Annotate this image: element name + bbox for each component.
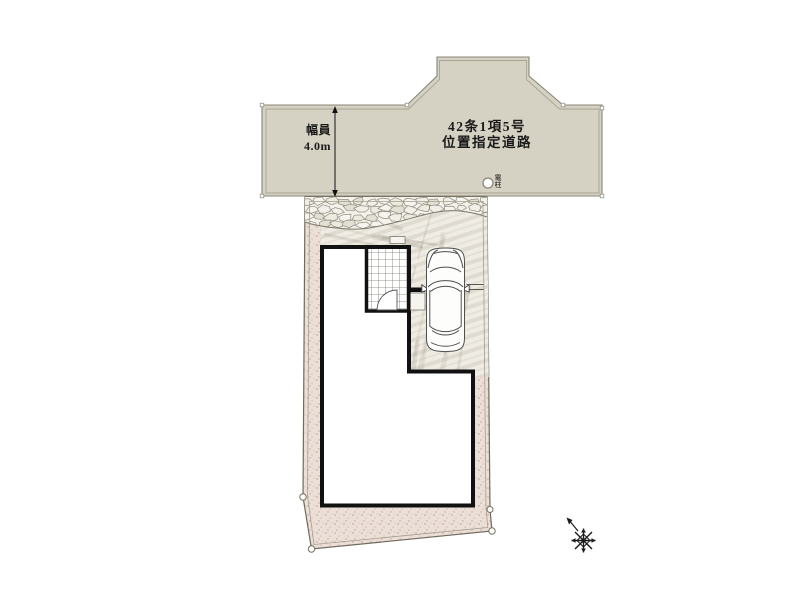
car-icon [422, 248, 469, 352]
plot-area [299, 197, 495, 553]
utility-pole-icon [483, 178, 493, 188]
road-designation-label: 42条1項5号 位置指定道路 [404, 119, 570, 150]
road-designation-line2: 位置指定道路 [404, 135, 570, 151]
entrance-tile-area [367, 247, 410, 311]
north-arrow-icon [567, 518, 579, 532]
road-designation-line1: 42条1項5号 [404, 119, 570, 135]
road-width-value: 4.0m [291, 139, 331, 155]
site-plan-drawing [0, 0, 800, 600]
compass-rose-icon [567, 518, 596, 553]
road-width-word: 幅員 [291, 123, 331, 139]
stone [403, 198, 417, 207]
porch-step [390, 237, 405, 244]
utility-pole-label: 電柱 [494, 174, 501, 188]
site-plan-canvas: 42条1項5号 位置指定道路 幅員 4.0m 電柱 [0, 0, 800, 600]
road-width-label: 幅員 4.0m [291, 123, 331, 154]
entrance-step [411, 293, 426, 310]
